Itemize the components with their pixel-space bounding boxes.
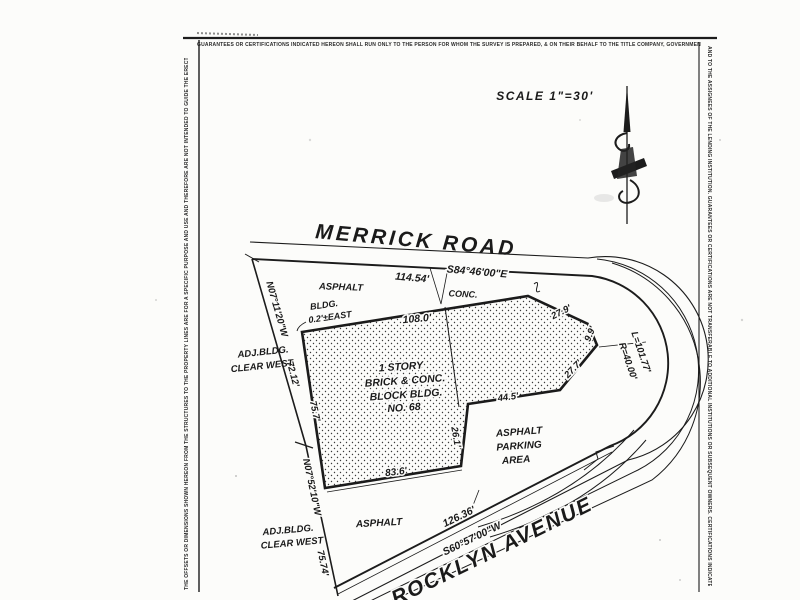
surface-asphalt-south: ASPHALT	[355, 517, 404, 531]
surface-asphalt-north: ASPHALT	[318, 281, 365, 294]
bearing-west-lower: N07°52'10"W	[300, 458, 323, 518]
parking-label-line3: AREA	[501, 454, 531, 467]
plat-drawing: SCALE 1"=30' MERRICK ROAD S84°46'00"E 11…	[0, 0, 800, 600]
note-adj-bldg-south-2: CLEAR WEST	[260, 535, 325, 552]
corner-squiggle-mark	[534, 283, 540, 292]
dim-building-wing-back: 44.5'	[496, 391, 520, 405]
parking-label-line1: ASPHALT	[495, 425, 544, 439]
survey-sheet: GUARANTEES OR CERTIFICATIONS INDICATED H…	[0, 0, 800, 600]
witness-tick-rocklyn	[472, 490, 479, 508]
building-footprint	[302, 296, 597, 488]
distance-rocklyn: 126.36'	[441, 504, 478, 530]
parking-label-line2: PARKING	[496, 439, 542, 453]
building-label-line4: NO. 68	[387, 401, 421, 415]
bearing-merrick: S84°46'00"E	[446, 263, 509, 280]
distance-merrick: 114.54'	[395, 271, 430, 286]
dim-building-rear: 83.6'	[385, 466, 409, 480]
bldg-offset-leader	[297, 322, 306, 331]
street-label-merrick-road: MERRICK ROAD	[315, 220, 518, 260]
scale-label: SCALE 1"=30'	[496, 89, 594, 103]
street-label-rocklyn-avenue: ROCKLYN AVENUE	[388, 493, 597, 600]
north-arrow-icon	[611, 86, 647, 224]
witness-tick-merrick	[430, 268, 448, 304]
note-bldg-offset-1: BLDG.	[309, 298, 338, 312]
surface-conc: CONC.	[448, 288, 477, 300]
bend-tick-west	[295, 442, 313, 448]
scan-artifact	[197, 33, 258, 35]
dim-building-front: 108.0'	[402, 312, 432, 327]
